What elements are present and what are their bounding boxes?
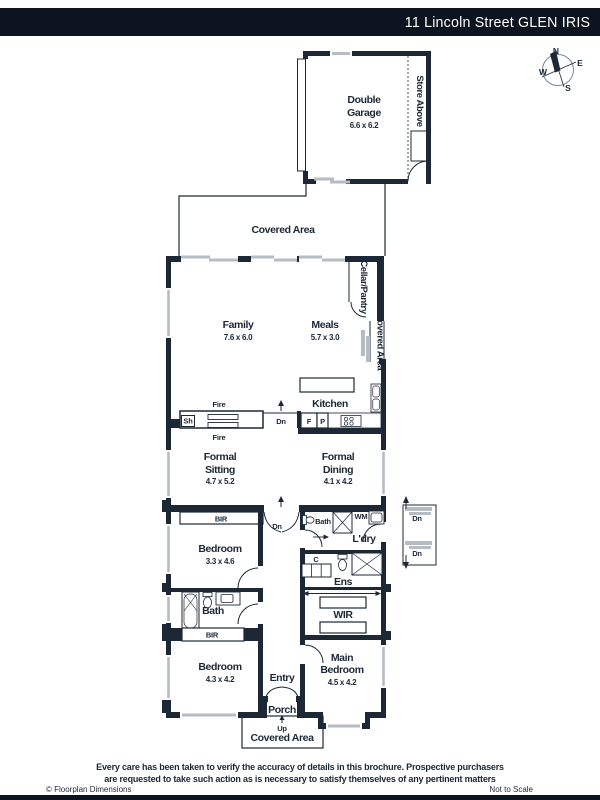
laundry-trough	[369, 511, 384, 524]
bedroom3-dims: 4.3 x 4.2	[206, 675, 235, 684]
dn-label: Dn	[412, 549, 422, 558]
garage-window	[332, 52, 350, 55]
toilet	[338, 555, 347, 571]
garage: Double Garage 6.6 x 6.2 Store Above	[298, 51, 432, 184]
porch-label: Porch	[268, 704, 296, 716]
wet-area-cluster: Bath WM L'dry C	[300, 511, 384, 640]
bath-door-arc	[238, 604, 258, 624]
store-above-label: Store Above	[414, 75, 425, 126]
main-bedroom-label-1: Main	[331, 652, 353, 664]
window	[167, 526, 170, 572]
fire-label: Fire	[213, 433, 226, 442]
garage-sliding-door	[314, 178, 334, 181]
window	[382, 452, 385, 494]
bir-label: BIR	[206, 631, 219, 640]
double-door-arc	[282, 512, 299, 532]
main-bedroom-label-2: Bedroom	[320, 664, 363, 676]
floorplan-page: 11 Lincoln Street GLEN IRIS N E W S	[0, 0, 600, 800]
bedroom3-label: Bedroom	[198, 661, 241, 673]
bedroom-door-arc	[238, 568, 258, 588]
side-landing: Dn Dn	[403, 496, 436, 569]
bedroom2-dims: 3.3 x 4.6	[206, 557, 235, 566]
disclaimer-line-1: Every care has been taken to verify the …	[0, 762, 600, 772]
family-label: Family	[223, 319, 254, 331]
door-arc	[305, 530, 322, 547]
vanity	[216, 592, 240, 605]
garage-door-arc	[408, 161, 428, 181]
formal-dining-label-2: Dining	[323, 464, 353, 476]
top-wall	[166, 256, 384, 263]
main-bedroom-dims: 4.5 x 4.2	[328, 678, 357, 687]
formal-sitting-label-1: Formal	[204, 451, 237, 463]
window	[167, 452, 170, 496]
laundry-label: L'dry	[352, 533, 376, 545]
main-bedroom-door-arc	[305, 645, 323, 663]
covered-area-top-label: Covered Area	[251, 224, 315, 236]
window	[167, 597, 170, 621]
wardrobe	[320, 597, 366, 608]
cupboard	[302, 564, 331, 577]
wm-label: WM	[355, 512, 368, 521]
fridge-label: F	[307, 417, 312, 426]
up-arrow-icon	[278, 400, 284, 406]
sliding-door	[181, 256, 210, 259]
compass: N E W S	[539, 46, 583, 93]
garage-dims: 6.6 x 6.2	[350, 121, 379, 130]
covered-area-right-label: Covered Area	[375, 314, 386, 372]
covered-area-top: Covered Area	[179, 184, 385, 256]
fireplace-band: Sh Fire Fire Dn	[166, 400, 297, 442]
washing-machine	[333, 512, 352, 533]
sh-label: Sh	[183, 417, 193, 426]
right-arrow-icon	[324, 535, 330, 540]
bath-lower-label: Bath	[202, 605, 224, 617]
formal-dining-dims: 4.1 x 4.2	[324, 477, 353, 486]
wardrobe	[320, 622, 366, 633]
toilet	[303, 516, 315, 525]
meals-label: Meals	[311, 319, 339, 331]
formal-sitting-label-2: Sitting	[205, 464, 235, 476]
ens-label: Ens	[334, 576, 353, 588]
kitchen-label: Kitchen	[312, 398, 348, 410]
dn-label: Dn	[276, 417, 286, 426]
bathtub	[182, 592, 199, 630]
steps	[361, 330, 365, 356]
window	[328, 725, 360, 728]
left-wall	[162, 256, 171, 713]
family-dims: 7.6 x 6.0	[224, 333, 253, 342]
steps	[405, 541, 432, 545]
copyright-note: © Floorplan Dimensions	[46, 785, 131, 794]
formal-sitting-dims: 4.7 x 5.2	[206, 477, 235, 486]
formal-dining-label-1: Formal	[322, 451, 355, 463]
compass-e: E	[577, 58, 583, 68]
bedroom2-label: Bedroom	[198, 543, 241, 555]
store-closet	[411, 131, 428, 161]
disclaimer-line-2: are requested to take such action as is …	[0, 774, 600, 784]
cooktop	[341, 416, 361, 427]
compass-w: W	[539, 67, 548, 77]
lower-bathroom: Bath BIR	[171, 588, 263, 641]
garage-door	[298, 59, 306, 171]
pantry-label: P	[320, 417, 325, 426]
ensuite-shower	[352, 553, 382, 575]
window	[182, 714, 236, 717]
entry-label: Entry	[270, 672, 295, 684]
up-arrow-icon	[403, 496, 409, 503]
hallway-walls	[238, 512, 323, 715]
scale-note: Not to Scale	[489, 785, 533, 794]
window	[382, 647, 385, 686]
window	[167, 290, 170, 336]
island-bench	[300, 378, 354, 392]
sliding-door	[251, 256, 274, 259]
bath-mid-label: Bath	[315, 517, 331, 526]
dn-label: Dn	[412, 514, 422, 523]
garage-label-2: Garage	[347, 107, 381, 119]
cellar-pantry-label: Cellar/Pantry	[358, 260, 369, 315]
garage-label-1: Double	[347, 94, 381, 106]
sliding-door	[299, 256, 322, 259]
covered-area-bottom-label: Covered Area	[250, 732, 314, 744]
bir-label: BIR	[215, 515, 228, 524]
meals-dims: 5.7 x 3.0	[311, 333, 340, 342]
bottom-bar	[0, 795, 600, 800]
wir-label: WIR	[333, 609, 353, 621]
cupboard-label: C	[313, 555, 319, 564]
dn-label: Dn	[272, 522, 282, 531]
window	[167, 657, 170, 698]
steps	[405, 507, 432, 511]
wir-width-arrow	[303, 591, 381, 596]
entry-porch: Entry Porch Up Covered Area	[242, 672, 323, 748]
up-arrow-icon	[278, 496, 284, 502]
floorplan-drawing: N E W S Double Garage 6.6 x 6.2	[0, 0, 600, 800]
fire-label: Fire	[213, 400, 226, 409]
compass-s: S	[565, 83, 571, 93]
compass-n: N	[553, 46, 559, 56]
